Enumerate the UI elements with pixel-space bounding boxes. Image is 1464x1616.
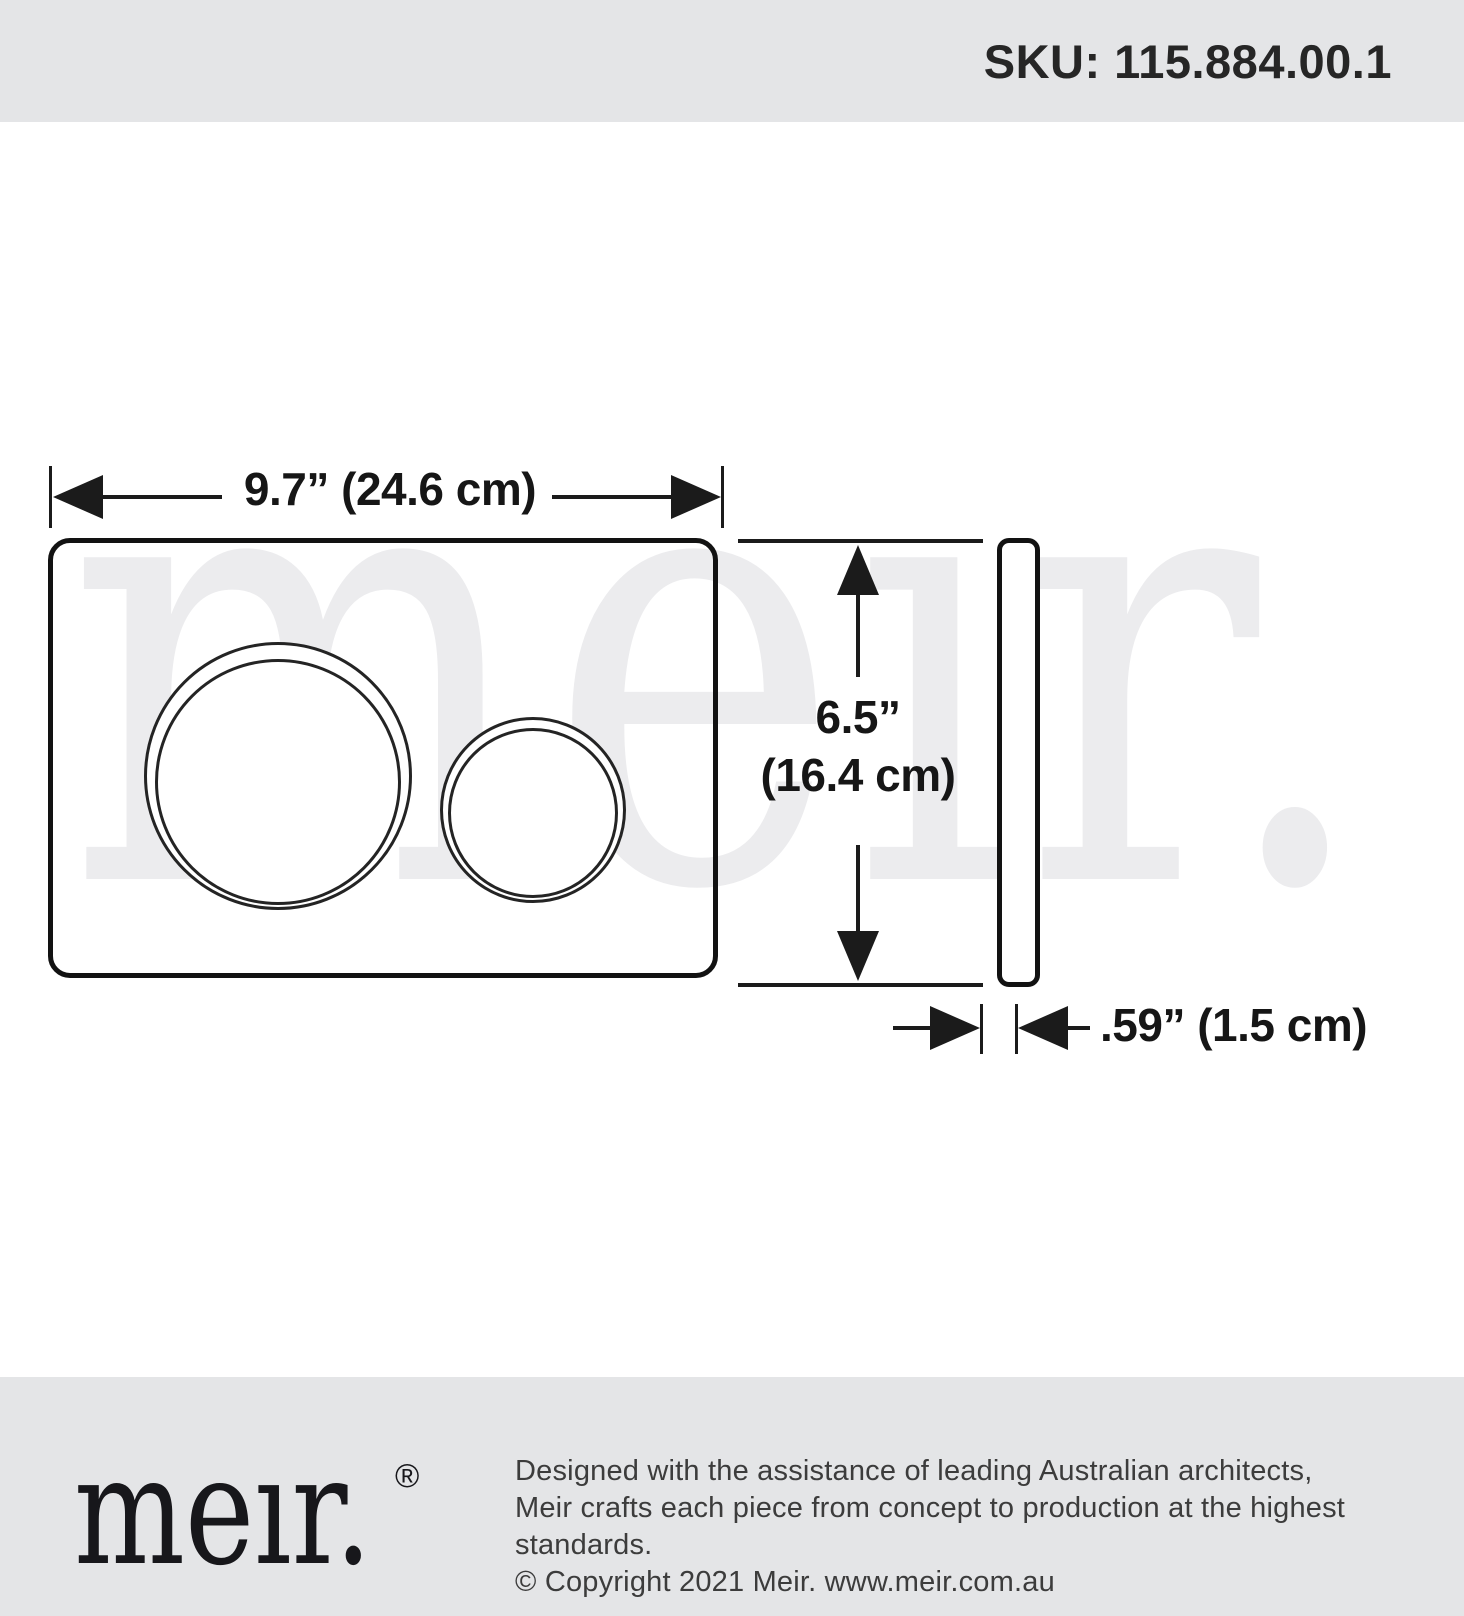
- sku-label: SKU: 115.884.00.1: [984, 34, 1392, 89]
- footer-copyright-line: © Copyright 2021 Meir. www.meir.com.au: [515, 1564, 1464, 1601]
- footer-tagline-line-2: Meir crafts each piece from concept to p…: [515, 1490, 1464, 1564]
- height-dim-line-lower: [856, 845, 860, 935]
- depth-dimension-label: .59” (1.5 cm): [1100, 998, 1367, 1052]
- footer-tagline: Designed with the assistance of leading …: [515, 1453, 1464, 1601]
- height-dim-up-arrow-icon: [837, 545, 879, 595]
- large-flush-button-inner-ring: [155, 659, 401, 905]
- spec-sheet-page: SKU: 115.884.00.1 meır. 9.7” (24.6 cm) 6…: [0, 0, 1464, 1616]
- footer-band: meır. ® Designed with the assistance of …: [0, 1377, 1464, 1616]
- width-dim-right-tick: [721, 466, 724, 528]
- depth-dim-left-tick: [980, 1004, 983, 1054]
- depth-dim-right-arrow-icon: [930, 1006, 980, 1050]
- width-dim-left-tick: [49, 466, 52, 528]
- depth-dim-left-arrow-icon: [1018, 1006, 1068, 1050]
- small-flush-button-inner-ring: [448, 728, 618, 898]
- meir-logo: meır.: [74, 1437, 372, 1587]
- width-dim-left-arrow-icon: [53, 475, 103, 519]
- width-dim-line-left: [100, 495, 222, 499]
- small-flush-button: [440, 717, 626, 903]
- width-dimension-label: 9.7” (24.6 cm): [220, 462, 560, 516]
- height-dimension-label-inches: 6.5”: [708, 690, 1008, 744]
- large-flush-button: [144, 642, 412, 910]
- width-dim-right-arrow-icon: [671, 475, 721, 519]
- height-dim-line-upper: [856, 592, 860, 677]
- height-dim-top-extension-line: [738, 539, 983, 543]
- width-dim-line-right: [552, 495, 674, 499]
- registered-trademark-icon: ®: [395, 1457, 419, 1495]
- header-band: SKU: 115.884.00.1: [0, 0, 1464, 122]
- height-dimension-label-cm: (16.4 cm): [708, 748, 1008, 802]
- depth-dim-line-right: [1068, 1026, 1090, 1030]
- height-dim-down-arrow-icon: [837, 931, 879, 981]
- footer-tagline-line-1: Designed with the assistance of leading …: [515, 1453, 1464, 1490]
- height-dim-bottom-extension-line: [738, 983, 983, 987]
